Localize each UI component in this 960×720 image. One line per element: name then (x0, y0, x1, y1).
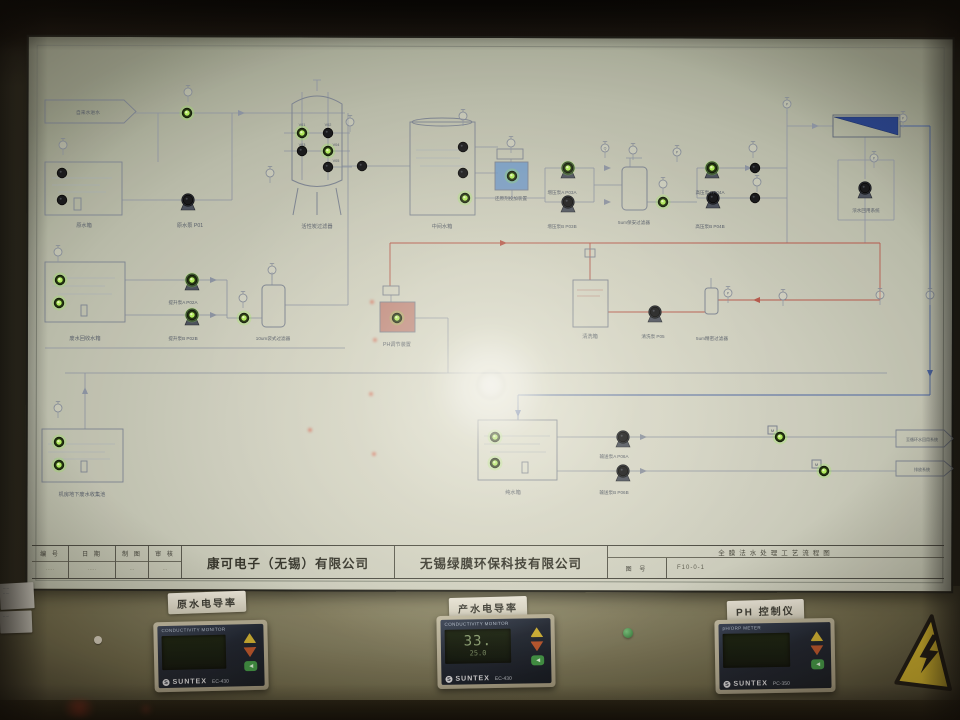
title-block-field: 日 期 ····· (69, 546, 116, 578)
meter-face: CONDUCTIVITY MONITOR S SUNTEX EC-430 (157, 624, 264, 688)
indicator-led-on (237, 311, 252, 326)
gauge-icon (749, 142, 757, 159)
gauge-icon (659, 178, 667, 195)
diagram-label: 高压泵A P04A (695, 189, 725, 196)
cip-tank (573, 280, 608, 327)
diagram-label: 提升泵A P02A (168, 299, 198, 306)
round-sticker-green (623, 628, 633, 638)
indicator-led-on (52, 435, 67, 450)
gauge-icon (779, 290, 787, 307)
suntex-logo-icon: S (445, 676, 452, 683)
indicator-led-off (618, 466, 628, 476)
red-speck (372, 452, 376, 456)
meter-header: CONDUCTIVITY MONITOR (444, 620, 546, 627)
indicator-led-on (561, 161, 576, 176)
diagram-label: 活性炭过滤器 (301, 222, 333, 230)
indicator-led-off (183, 195, 193, 205)
indicator-led-on (458, 191, 473, 206)
camera-flash-glare (476, 370, 506, 400)
pump-icon (185, 273, 200, 291)
indicator-led-off (860, 183, 870, 193)
pipes-blue (518, 126, 930, 420)
gauge-icon (239, 292, 247, 309)
gauge-icon (266, 167, 274, 184)
diagram-label: 中间水箱 (432, 222, 453, 230)
gauge-icon (59, 139, 67, 156)
down-button (243, 647, 256, 657)
diagram-label: 原水箱 (76, 221, 92, 229)
diagram-label: V03 (299, 143, 306, 147)
pump-icon (181, 194, 195, 210)
field-value: ··· (149, 562, 181, 578)
diagram-label: 还原剂投加装置 (495, 195, 528, 202)
indicator-led-on (185, 273, 200, 288)
gauge-icon (507, 137, 515, 154)
indicator-led-on (180, 106, 195, 121)
diagram-label: 纯水箱 (505, 488, 521, 496)
indicator-led-off (57, 168, 67, 178)
indicator-led-off (57, 195, 67, 205)
diagram-label: V05 (333, 159, 340, 163)
indicator-led-off (458, 168, 468, 178)
conductivity-meter-product: CONDUCTIVITY MONITOR 33. 25.0 S SUNTEX E… (436, 614, 555, 689)
sticker-text: ····· (3, 589, 31, 595)
lcd-main-value (162, 639, 226, 640)
indicator-led-on (488, 456, 503, 471)
down-button (810, 645, 823, 655)
enter-button (244, 661, 257, 671)
carbon-filter-vessel (292, 96, 342, 187)
pump-icon (616, 431, 630, 447)
gauge-icon (54, 246, 62, 263)
enter-button (531, 655, 544, 665)
gauge-icon (926, 289, 934, 306)
title-block-field: 制 图 ··· (116, 546, 149, 578)
meter-face: CONDUCTIVITY MONITOR 33. 25.0 S SUNTEX E… (440, 618, 551, 685)
diagram-label: M (815, 462, 818, 467)
gauge-icon (876, 289, 884, 306)
pump-icon (648, 306, 662, 322)
title-block: 编 号 ····· 日 期 ····· 制 图 ··· 审 核 ··· 康可电子… (32, 545, 944, 579)
gauge-icon: P (673, 146, 681, 163)
drawing-title: 全膜法水处理工艺流程图 (608, 546, 944, 558)
gauge-icon: P (724, 287, 732, 304)
diagram-label: 5um精密过滤器 (696, 335, 728, 342)
meter-header: CONDUCTIVITY MONITOR (161, 626, 259, 633)
model-number: EC-430 (212, 678, 229, 684)
brand-name: SUNTEX (733, 680, 768, 688)
lcd-sub-value (162, 639, 226, 640)
indicator-led-on (52, 458, 67, 473)
precision-filter-vessel (705, 288, 718, 314)
gauge-icon (459, 110, 467, 127)
lcd-main-value: 33. (445, 633, 511, 650)
indicator-led-on (185, 308, 200, 323)
field-label: 审 核 (149, 546, 181, 562)
diagram-label: 自来水进水 (76, 109, 100, 116)
pump-icon (561, 196, 575, 212)
company-name-left: 康可电子（无锡）有限公司 (182, 546, 395, 578)
diagram-label: 清洗箱 (582, 332, 598, 340)
model-number: PC-350 (773, 680, 790, 686)
indicator-led-on (295, 126, 310, 141)
diagram-label: V01 (299, 123, 306, 127)
diagram-label: 5um保安过滤器 (618, 219, 650, 226)
lcd-sub-value (723, 637, 790, 638)
indicator-led-off (618, 432, 628, 442)
diagram-label: 清洗泵 P05 (641, 333, 665, 340)
pure-water-tank (478, 420, 557, 480)
ph-controller-meter: pH/ORP METER S SUNTEX PC-350 (714, 618, 835, 694)
gauge-icon (753, 176, 761, 193)
diagram-label: V02 (325, 123, 332, 127)
pump-icon (705, 161, 720, 179)
edge-sticker: ····· ····· (0, 582, 35, 610)
indicator-led-on (488, 430, 503, 445)
red-speck (373, 338, 377, 342)
diagram-label: 增压泵B P03B (547, 223, 576, 230)
indicator-led-on (817, 464, 832, 479)
up-button (810, 631, 823, 641)
gauge-icon (54, 402, 62, 419)
sticker-text: ····· (3, 613, 29, 619)
up-button (530, 627, 543, 637)
diagram-label: M (771, 428, 774, 433)
model-number: EC-430 (495, 675, 512, 681)
diagram-label: 原水泵 P01 (177, 221, 203, 229)
field-label: 制 图 (116, 546, 148, 562)
lcd-display: 33. 25.0 (445, 629, 512, 664)
indicator-led-off (563, 197, 573, 207)
conductivity-meter-raw: CONDUCTIVITY MONITOR S SUNTEX EC-430 (153, 620, 269, 693)
gauge-icon: P (870, 152, 878, 169)
suntex-logo-icon: S (723, 681, 730, 688)
field-value: ··· (116, 562, 148, 578)
gauge-icon (184, 86, 192, 103)
diagram-label: 废水回收水箱 (69, 334, 100, 342)
round-sticker-white (94, 636, 102, 644)
title-block-field: 编 号 ····· (32, 546, 69, 578)
indicator-led-off (458, 142, 468, 152)
indicator-led-on (52, 296, 67, 311)
indicator-led-on (390, 311, 405, 326)
indicator-led-on (505, 169, 520, 184)
ro-membrane-wedge (834, 117, 898, 135)
gauge-icon: Q (601, 142, 609, 159)
raw-water-tank (45, 162, 122, 215)
down-button (530, 641, 543, 651)
indicator-led-off (750, 163, 760, 173)
brand-name: SUNTEX (173, 678, 208, 686)
lcd-main-value (723, 637, 790, 638)
suntex-logo-icon: S (163, 679, 170, 686)
field-value: ····· (69, 562, 115, 578)
field-label: 日 期 (69, 546, 115, 562)
bag-filter-vessel (262, 285, 285, 327)
drawing-no-label: 图 号 (608, 558, 667, 578)
indicator-led-off (323, 162, 333, 172)
diagram-label: 高压泵B P04B (695, 223, 724, 230)
meter-plate-raw-conductivity: 原水电导率 (168, 591, 247, 615)
lcd-sub-value: 25.0 (445, 649, 511, 658)
diagram-label: 提升泵B P02B (168, 335, 197, 342)
brand-name: SUNTEX (455, 675, 490, 683)
meter-face: pH/ORP METER S SUNTEX PC-350 (718, 622, 831, 690)
field-value: ····· (32, 562, 68, 578)
red-speck (370, 300, 374, 304)
pump-icon (561, 161, 576, 179)
red-speck (369, 392, 373, 396)
diagram-label: 输送泵A P06A (599, 453, 629, 460)
svg-text:Q: Q (604, 147, 607, 151)
drawing-no-value: F10-0-1 (667, 558, 944, 578)
indicator-led-off (750, 193, 760, 203)
security-filter-vessel (622, 167, 647, 210)
indicator-led-on (705, 161, 720, 176)
diagram-label: PH调节装置 (383, 340, 411, 348)
diagram-label: 输送泵B P06B (599, 489, 628, 496)
pipes-red (390, 243, 880, 312)
indicator-led-off (650, 307, 660, 317)
lcd-display (162, 635, 226, 670)
indicator-led-on (656, 195, 671, 210)
lcd-display (723, 633, 791, 668)
indicator-led-on (53, 273, 68, 288)
gauge-icon: P (783, 98, 791, 115)
filter-vessels (262, 96, 821, 468)
ro-membrane-module (833, 115, 900, 137)
pipes-gray (45, 80, 896, 471)
field-label: 编 号 (32, 546, 68, 562)
indicator-led-off (323, 128, 333, 138)
title-block-field: 审 核 ··· (149, 546, 182, 578)
pump-icon (858, 182, 872, 198)
enter-button (811, 659, 824, 669)
up-button (243, 633, 256, 643)
gauge-icon (268, 264, 276, 281)
company-name-right: 无锡绿膜环保科技有限公司 (395, 546, 608, 578)
pump-icon (185, 308, 200, 326)
high-voltage-warning-icon (893, 609, 960, 700)
gauge-icon (629, 144, 637, 161)
diagram-label: 排放系统 (914, 466, 930, 472)
diagram-label: 浓水回用系统 (852, 207, 880, 214)
red-speck (308, 428, 312, 432)
tanks (42, 118, 608, 482)
gauge-icon (346, 116, 354, 133)
control-panel-photo: QPPPPP自来水进水原水箱原水泵 P01活性炭过滤器V01V02V03V04V… (0, 0, 960, 720)
drawing-info: 全膜法水处理工艺流程图 图 号 F10-0-1 (608, 546, 944, 578)
diagram-label: 10um袋式过滤器 (256, 335, 291, 342)
indicator-led-off (357, 161, 367, 171)
edge-sticker: ····· (0, 610, 32, 633)
waste-recovery-tank (45, 262, 125, 322)
indicator-led-on (773, 430, 788, 445)
diagram-label: 机房地下废水收集池 (59, 490, 106, 498)
diagram-label: V04 (333, 143, 340, 147)
pump-icon (616, 465, 630, 481)
gauges: QPPPPP (54, 86, 934, 419)
indicator-led-off (297, 146, 307, 156)
diagram-label: 增压泵A P03A (547, 189, 577, 196)
diagram-label: 至循环水回用系统 (906, 436, 938, 442)
meter-header: pH/ORP METER (722, 624, 826, 631)
